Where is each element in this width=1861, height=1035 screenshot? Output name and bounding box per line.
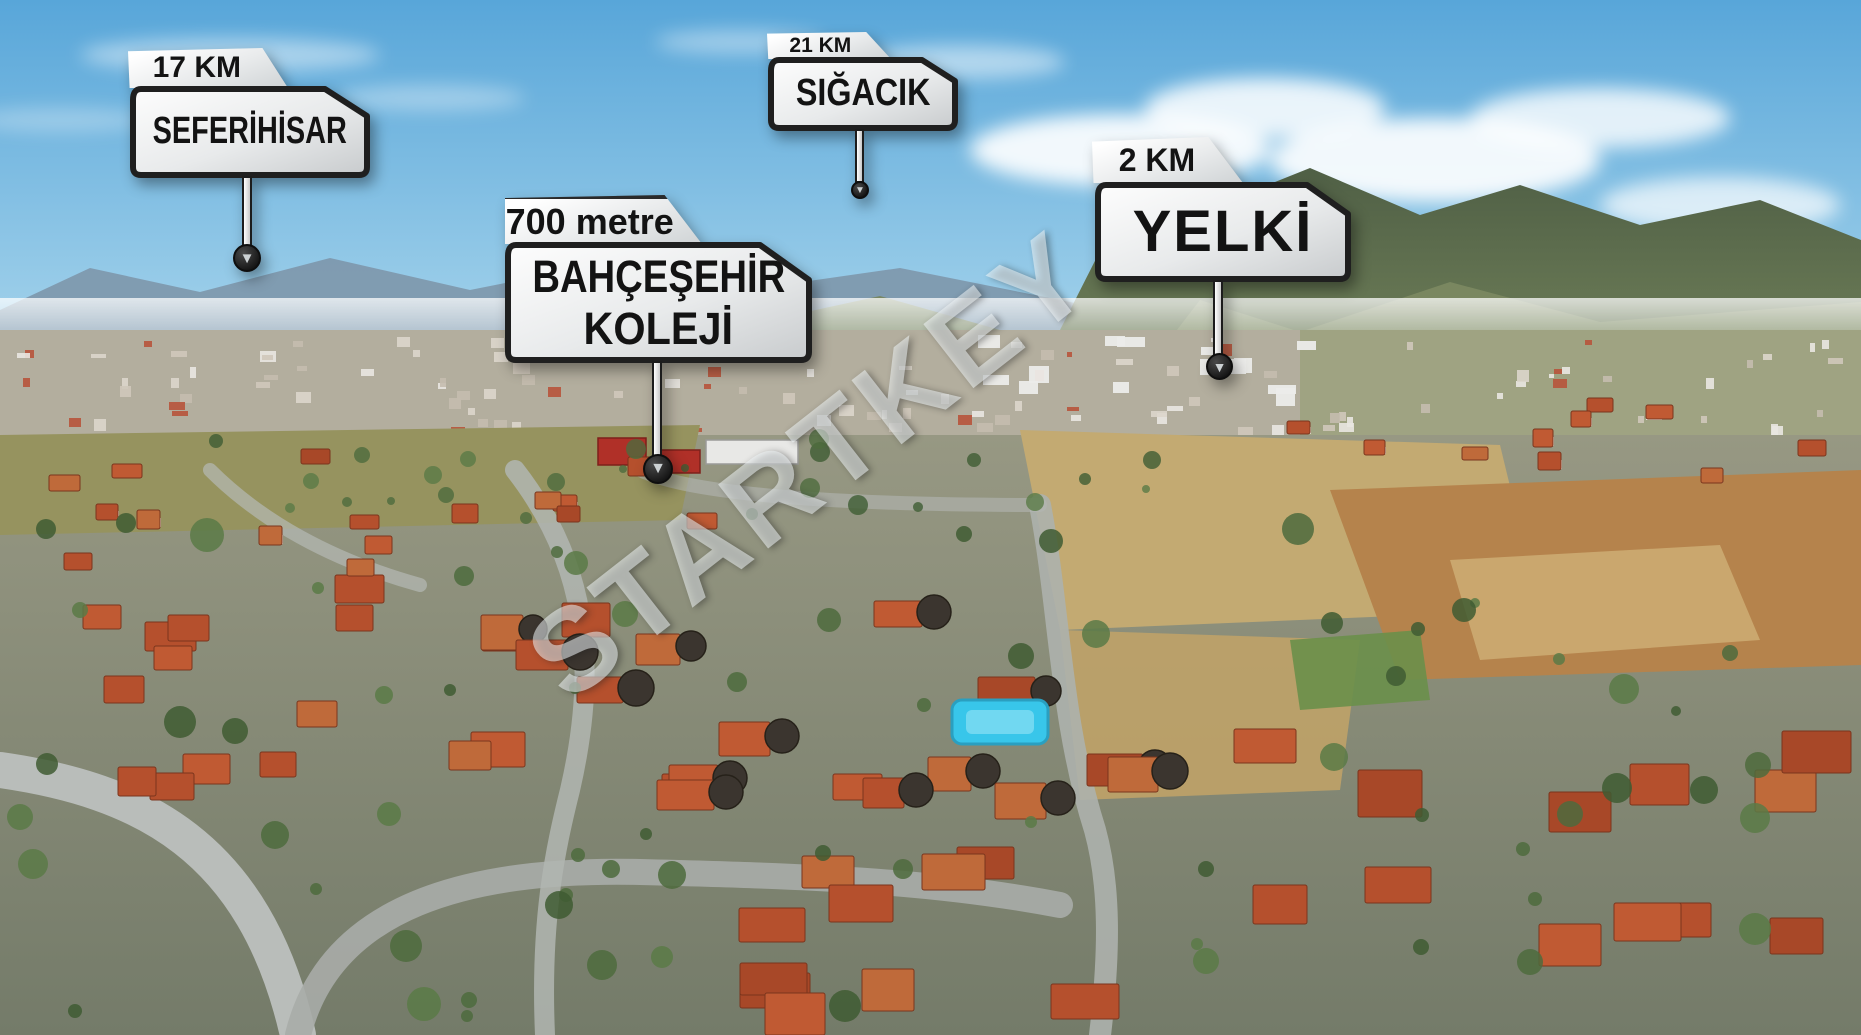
place-label-line1: BAHÇEŞEHİR <box>532 251 785 303</box>
place-plate: BAHÇEŞEHİR KOLEJİ <box>505 242 812 363</box>
distance-label: 2 KM <box>1119 142 1217 179</box>
location-marker-icon: ▼ <box>643 454 673 484</box>
place-label: YELKİ <box>1133 201 1314 264</box>
sign-pole <box>855 129 864 183</box>
distance-label: 17 KM <box>153 51 264 85</box>
arrow-down-icon: ▼ <box>855 185 865 196</box>
place-label: SIĞACIK <box>796 73 931 114</box>
distance-label: 21 KM <box>789 34 868 58</box>
location-marker-icon: ▼ <box>851 181 869 199</box>
place-plate: SIĞACIK <box>768 57 958 131</box>
sign-pole <box>242 176 252 250</box>
arrow-down-icon: ▼ <box>650 460 666 478</box>
place-plate: YELKİ <box>1095 182 1351 282</box>
location-marker-icon: ▼ <box>1206 353 1233 380</box>
sign-pole <box>652 361 662 459</box>
arrow-down-icon: ▼ <box>240 250 255 267</box>
place-plate: SEFERİHİSAR <box>130 86 370 178</box>
distance-label: 700 metre <box>506 201 702 243</box>
place-label: SEFERİHİSAR <box>153 111 347 152</box>
sign-pole <box>1213 280 1223 356</box>
location-marker-icon: ▼ <box>233 244 261 272</box>
distance-plate: 17 KM <box>128 48 288 88</box>
aerial-photo-scene: STARTKEY 17 KM SEFERİHİSAR ▼ 21 KM SIĞAC… <box>0 0 1861 1035</box>
arrow-down-icon: ▼ <box>1213 359 1227 375</box>
place-label-line2: KOLEJİ <box>584 303 734 355</box>
